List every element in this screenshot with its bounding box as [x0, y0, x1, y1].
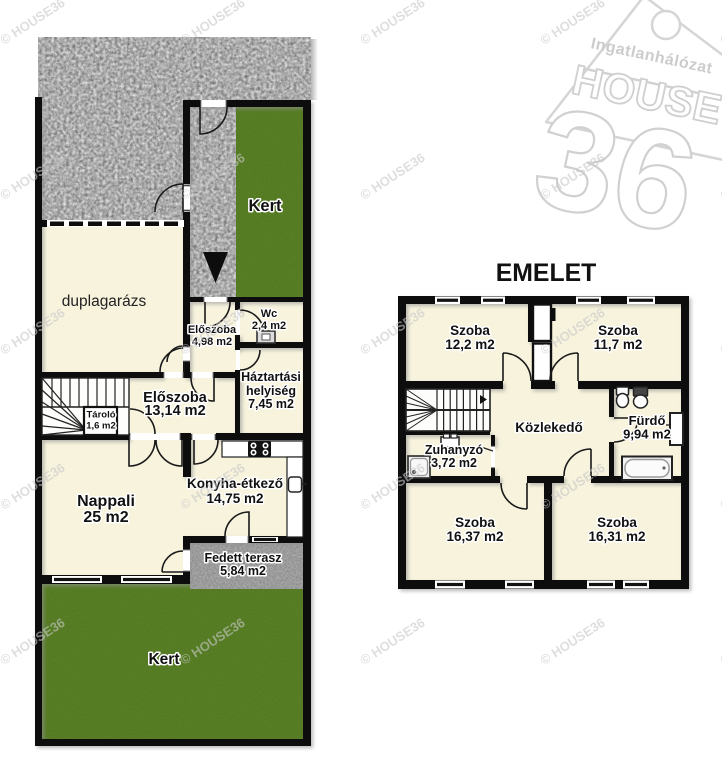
svg-text:duplagarázs: duplagarázs [62, 293, 147, 310]
svg-text:Kert: Kert [148, 651, 179, 668]
svg-text:Nappali: Nappali [77, 493, 135, 510]
svg-text:Kert: Kert [248, 197, 282, 215]
svg-text:3,72 m2: 3,72 m2 [431, 456, 477, 470]
svg-text:25 m2: 25 m2 [83, 509, 128, 526]
svg-text:7,45 m2: 7,45 m2 [248, 397, 294, 411]
svg-text:helyiség: helyiség [246, 384, 296, 398]
svg-text:Zuhanyzó: Zuhanyzó [425, 443, 484, 457]
svg-text:9,94 m2: 9,94 m2 [623, 427, 671, 442]
svg-text:EMELET: EMELET [496, 260, 597, 287]
svg-text:Tároló: Tároló [86, 410, 115, 421]
svg-text:Háztartási: Háztartási [241, 370, 301, 384]
svg-text:12,2 m2: 12,2 m2 [445, 337, 495, 352]
svg-text:Szoba: Szoba [450, 323, 490, 338]
svg-text:13,14 m2: 13,14 m2 [144, 403, 205, 419]
svg-text:16,37 m2: 16,37 m2 [446, 529, 503, 544]
svg-text:Szoba: Szoba [598, 323, 638, 338]
svg-text:Fedett terasz: Fedett terasz [204, 551, 281, 565]
svg-text:Szoba: Szoba [597, 515, 637, 530]
svg-text:Wc: Wc [261, 308, 278, 320]
svg-text:16,31 m2: 16,31 m2 [588, 529, 645, 544]
svg-text:1,6 m2: 1,6 m2 [86, 421, 116, 432]
svg-text:5,84 m2: 5,84 m2 [220, 564, 266, 578]
svg-text:11,7 m2: 11,7 m2 [594, 337, 643, 352]
svg-text:Szoba: Szoba [455, 515, 495, 530]
svg-text:2,4 m2: 2,4 m2 [252, 320, 286, 332]
svg-text:Közlekedő: Közlekedő [515, 420, 583, 435]
